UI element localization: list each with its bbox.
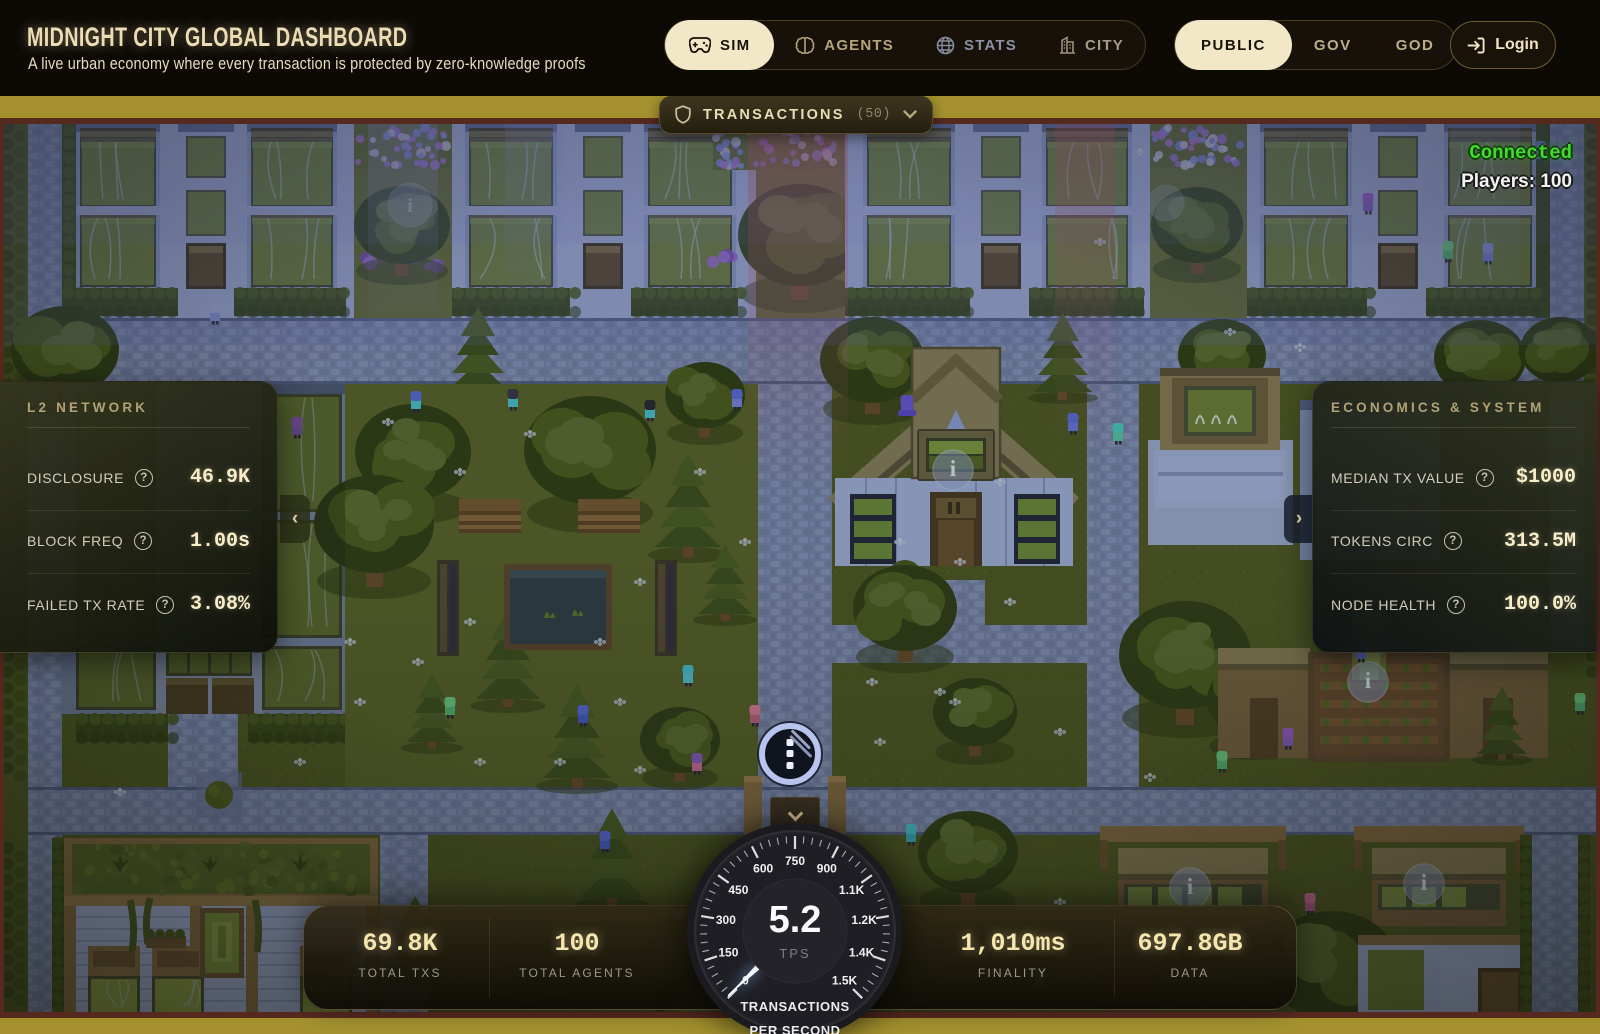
svg-text:600: 600 [753, 862, 773, 876]
svg-text:450: 450 [728, 883, 748, 897]
svg-text:750: 750 [785, 854, 805, 868]
svg-text:1.1K: 1.1K [839, 883, 865, 897]
svg-text:1.5K: 1.5K [832, 974, 858, 988]
svg-text:900: 900 [817, 862, 837, 876]
